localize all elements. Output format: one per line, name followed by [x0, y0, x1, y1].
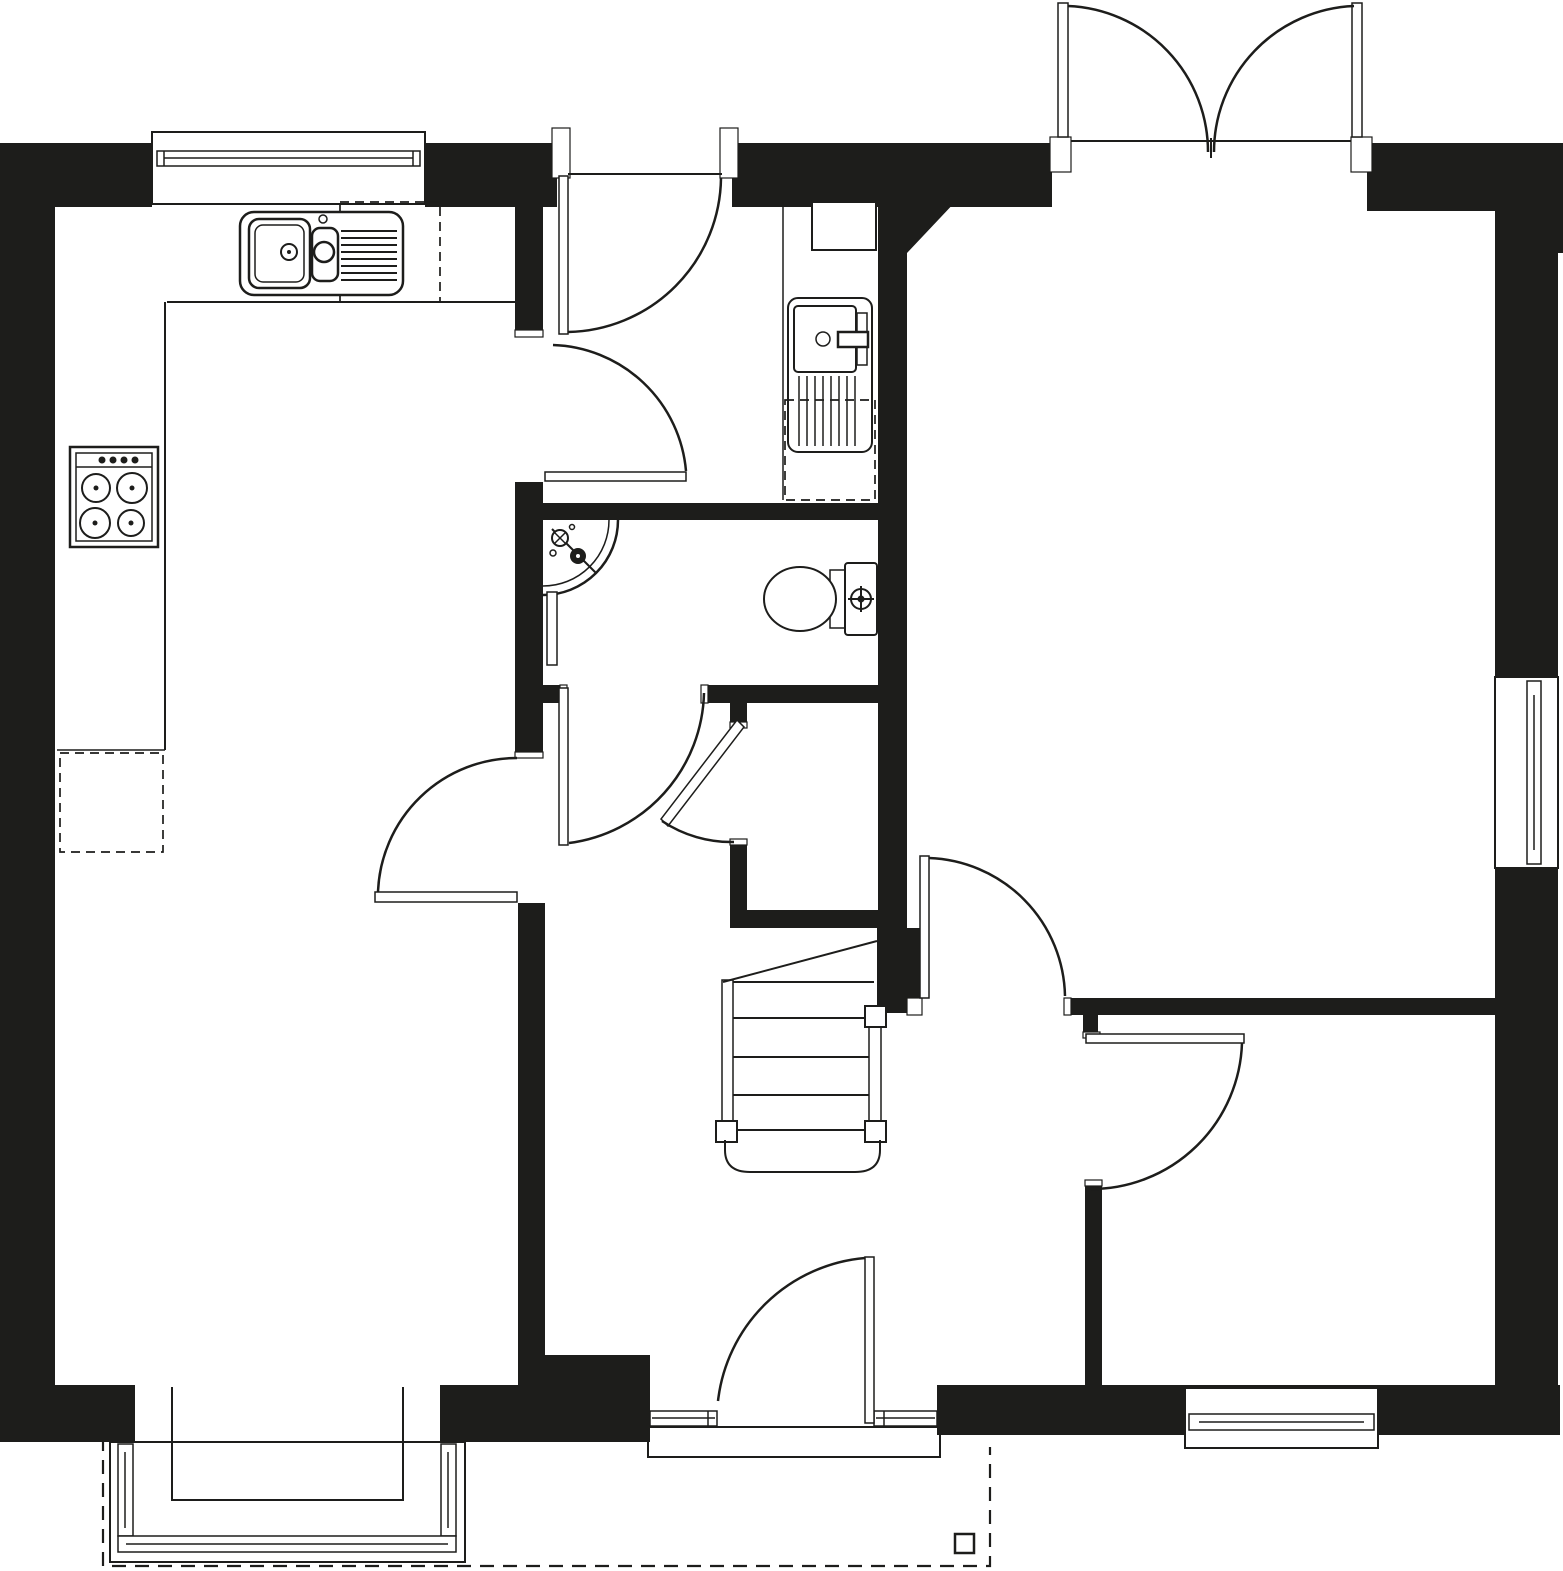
wall-cupboard-stub-bottom: [730, 845, 747, 910]
hob-knob: [110, 457, 117, 464]
wall-study-door-stub: [1083, 1015, 1098, 1033]
wall-study-west: [1085, 1186, 1102, 1395]
kitchen-window-frame: [152, 132, 425, 204]
stair-stringer-left: [722, 980, 733, 1123]
kitchen-north-door-leaf: [545, 472, 686, 481]
toilet-bowl: [764, 567, 836, 631]
french-door-leaf-right: [1352, 3, 1362, 137]
wall-living-south: [1067, 998, 1495, 1015]
patio-post: [955, 1534, 974, 1553]
hob-knob: [99, 457, 106, 464]
sink-drain-dot: [287, 250, 291, 254]
rear-door-leaf: [865, 1257, 874, 1423]
washing-machine: [788, 298, 872, 452]
wall-kitchen-hall-lower: [518, 903, 545, 1385]
front-door-jamb-right: [720, 128, 738, 178]
basin-hole: [570, 525, 575, 530]
wall-east-lower: [1495, 868, 1558, 1435]
french-door-jamb-right: [1351, 137, 1372, 172]
kitchen-sink: [240, 212, 403, 295]
stair-newel-post: [716, 1121, 737, 1142]
wall-cupboard-stub-top: [730, 703, 747, 723]
side-window: [1495, 677, 1558, 868]
stair-newel-post: [865, 1121, 886, 1142]
wall-wc-south: [707, 685, 880, 703]
front-door-jamb-left: [552, 128, 570, 178]
basin-hole: [550, 550, 556, 556]
front-door-leaf: [559, 176, 568, 334]
study-window: [1185, 1388, 1378, 1448]
wall-south-lounge-left: [0, 1385, 135, 1442]
wall-cupboard-south: [730, 910, 878, 928]
paper-background: [0, 0, 1563, 1571]
wall-wc-north: [543, 503, 905, 520]
hob: [70, 447, 158, 547]
living-room-door-leaf: [920, 856, 929, 998]
hob-knob: [132, 457, 139, 464]
stair-newel-post: [865, 1006, 886, 1027]
radiator: [547, 592, 557, 665]
porch-step: [648, 1427, 940, 1457]
cap-living-left: [907, 998, 922, 1015]
washer-door-lock: [816, 332, 830, 346]
cap-living-right: [1064, 998, 1071, 1015]
cap-kitchen-south: [515, 752, 543, 758]
wall-top-right: [1367, 143, 1563, 211]
wall-living-west: [878, 200, 907, 998]
wall-top-mid-right: [732, 143, 1052, 207]
toilet: [764, 563, 877, 635]
study-door-leaf: [1086, 1034, 1244, 1043]
porch-step-slab: [648, 1427, 940, 1457]
cap-kitchen-north: [515, 330, 543, 337]
sink-tap-icon: [314, 242, 334, 262]
kitchen-window: [152, 132, 425, 204]
hob-knob: [121, 457, 128, 464]
wc-door-leaf: [559, 688, 568, 845]
wall-kitchen-hall-upper: [515, 200, 543, 337]
wall-east-upper: [1495, 211, 1558, 677]
wall-west: [0, 143, 55, 1385]
floor-plan-drawing: ground-floor-plan: [0, 0, 1563, 1571]
wall-wc-south-stub: [543, 685, 560, 703]
sink-tap-hole: [319, 215, 327, 223]
kitchen-south-door-leaf: [375, 892, 517, 902]
stair-stringer-right: [869, 1025, 881, 1123]
cap-study-bottom: [1085, 1180, 1102, 1186]
french-door-jamb-left: [1050, 137, 1071, 172]
wall-kitchen-hall-mid: [515, 482, 543, 757]
wall-top-mid-left: [425, 143, 557, 207]
french-door-leaf-left: [1058, 3, 1068, 137]
floor-plan-canvas: ground-floor-plan: [0, 0, 1563, 1571]
washer-handle: [838, 332, 868, 347]
boiler-cupboard: [812, 202, 876, 250]
